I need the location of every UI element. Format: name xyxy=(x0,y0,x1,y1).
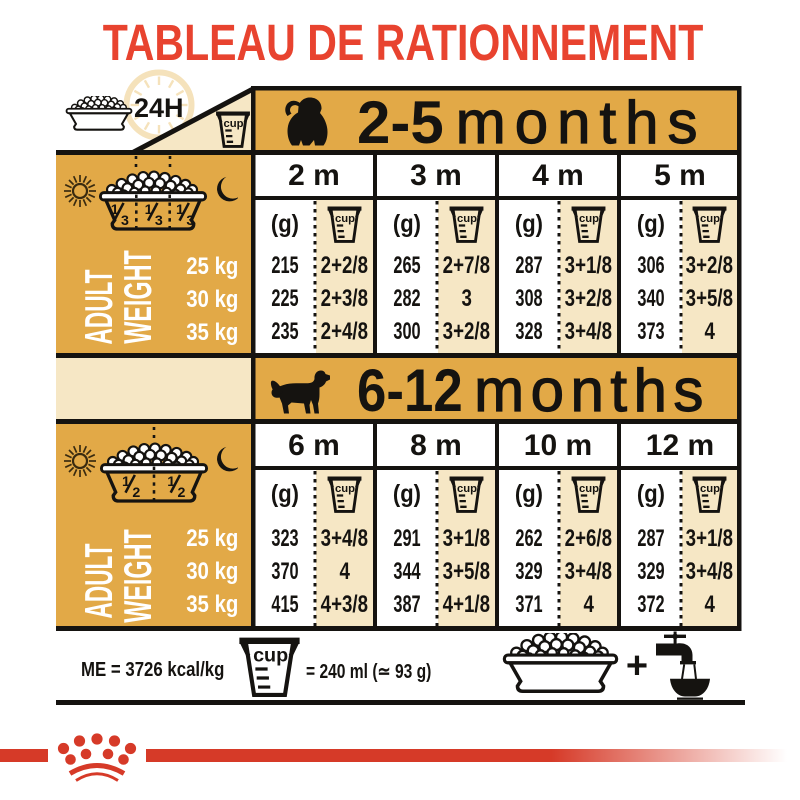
svg-text:cup: cup xyxy=(579,213,599,225)
svg-text:cup: cup xyxy=(579,483,599,495)
svg-text:cup: cup xyxy=(700,213,720,225)
svg-text:cup: cup xyxy=(335,213,355,225)
svg-text:cup: cup xyxy=(253,644,288,666)
svg-text:cup: cup xyxy=(457,483,477,495)
svg-text:cup: cup xyxy=(335,483,355,495)
svg-text:cup: cup xyxy=(700,483,720,495)
svg-text:cup: cup xyxy=(457,213,477,225)
